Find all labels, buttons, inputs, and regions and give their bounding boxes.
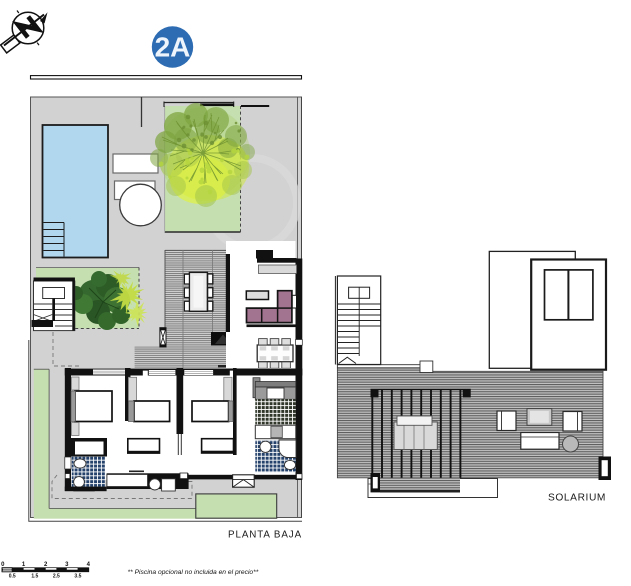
svg-text:SOLARIUM: SOLARIUM xyxy=(548,493,606,504)
svg-text:** Piscina opcional no incluid: ** Piscina opcional no incluida en el pr… xyxy=(128,569,259,576)
svg-text:2.5: 2.5 xyxy=(53,573,60,579)
svg-text:3.5: 3.5 xyxy=(74,573,81,579)
svg-text:0.5: 0.5 xyxy=(9,573,16,579)
svg-text:1.5: 1.5 xyxy=(31,573,38,579)
svg-text:2A: 2A xyxy=(155,32,191,63)
svg-text:PLANTA BAJA: PLANTA BAJA xyxy=(228,530,302,541)
